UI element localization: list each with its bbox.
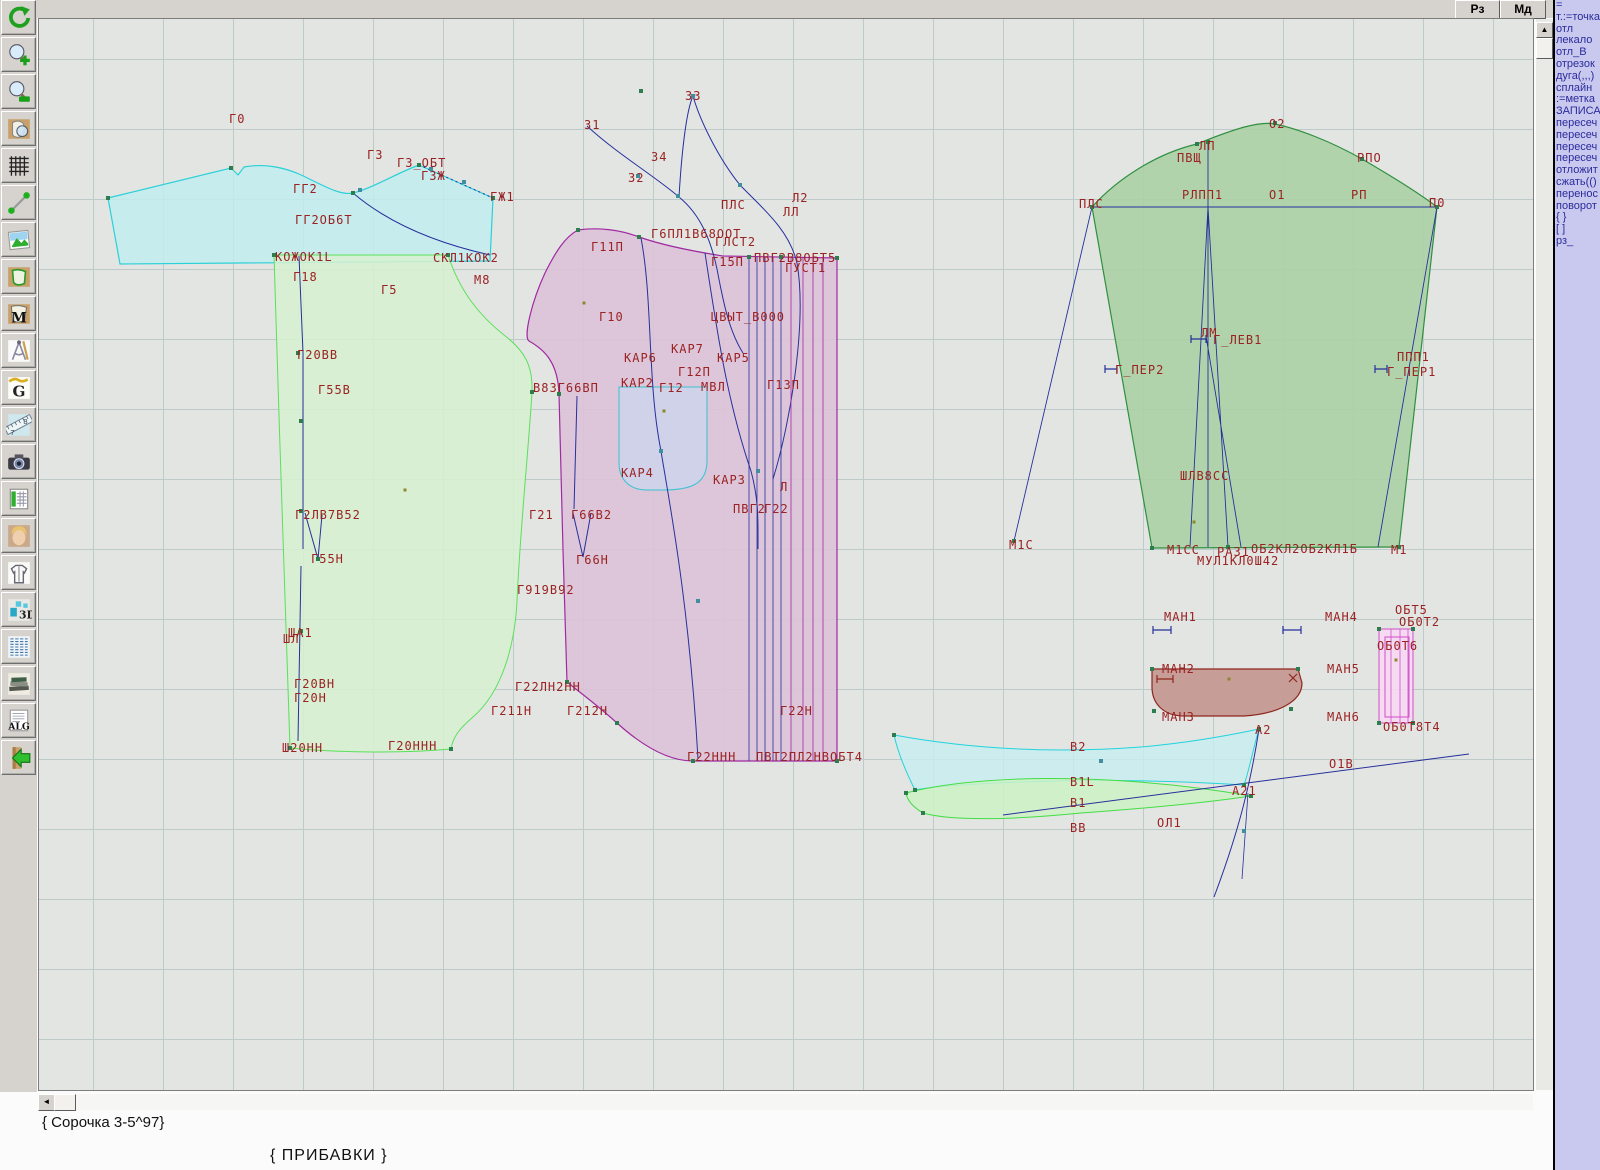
point-marker (747, 255, 751, 259)
pattern-label: МУЛ1КЛ0Ш42 (1197, 554, 1279, 568)
pattern-label: З4 (651, 150, 667, 164)
command-item[interactable]: дуга(,,,) (1555, 71, 1600, 83)
command-item[interactable]: пересеч (1555, 130, 1600, 142)
pattern-label: Г15П (711, 255, 744, 269)
pattern-label: Г21 (529, 508, 554, 522)
point-marker (1193, 521, 1196, 524)
pattern-label: СКЛ1КОК2 (433, 251, 499, 265)
pattern-label: Г3_ОБТ (397, 156, 446, 170)
command-item[interactable]: перенос (1555, 189, 1600, 201)
books-icon-button[interactable] (1, 666, 36, 701)
alg-icon: ALG (6, 708, 32, 734)
point-marker (1150, 546, 1154, 550)
point-marker (1150, 667, 1154, 671)
pattern-label: ОБ0Т8Т4 (1383, 720, 1441, 734)
image-icon-button[interactable] (1, 222, 36, 257)
pattern-label: В8ЗГ66ВП (533, 381, 599, 395)
pattern-label: ГГ2 (293, 182, 318, 196)
scroll-up-button[interactable]: ▲ (1536, 22, 1553, 38)
pattern-label: Г18 (293, 270, 318, 284)
pattern-label: КАР3 (713, 473, 746, 487)
table-icon-button[interactable] (1, 481, 36, 516)
pattern-label: МАН4 (1325, 610, 1358, 624)
pattern-label: В1L (1070, 775, 1095, 789)
pattern-label: МАН6 (1327, 710, 1360, 724)
pattern-label: КАР6 (624, 351, 657, 365)
pattern-label: Г55Н (311, 552, 344, 566)
svg-text:7: 7 (10, 427, 14, 436)
portrait-icon-button[interactable] (1, 518, 36, 553)
pattern-drawing: Г0Г3Г3_ОБТГЗЖГГ2ГГ2ОБ6ТГЖ1КОЖОК1LСКЛ1КОК… (39, 19, 1533, 1090)
piece-m-icon: M (6, 301, 32, 327)
point-marker (913, 788, 917, 792)
pattern-label: КАР7 (671, 342, 704, 356)
segment-icon-button[interactable] (1, 185, 36, 220)
pattern-label: Г12П (678, 365, 711, 379)
pattern-label: Г211Н (491, 704, 532, 718)
pattern-label: А2 (1255, 723, 1271, 737)
pattern-label: Г2ЛВ7В52 (295, 508, 361, 522)
point-marker (756, 469, 760, 473)
portrait-icon (6, 523, 32, 549)
pattern-label: Г11П (591, 240, 624, 254)
pattern-label: РЛПП1 (1182, 188, 1223, 202)
exit-icon-button[interactable] (1, 740, 36, 775)
zoom-out-icon (6, 79, 32, 105)
svg-text:M: M (11, 310, 27, 326)
point-marker (1296, 667, 1300, 671)
point-marker (299, 419, 303, 423)
pattern-label: Г20Н (294, 691, 327, 705)
command-list: =т.:=точкаотллекалоотл_Вотрезокдуга(,,,)… (1553, 0, 1600, 1170)
pattern-label: Г12 (659, 381, 684, 395)
pattern-label: А21 (1232, 784, 1257, 798)
pattern-label: КОЖОК1L (275, 250, 333, 264)
cuff-piece[interactable] (1152, 669, 1302, 716)
horizontal-scroll-thumb[interactable] (54, 1094, 76, 1111)
svg-text:G: G (12, 382, 25, 400)
pattern-label: Л2 (792, 191, 808, 205)
pattern-label: Г13П (767, 378, 800, 392)
segment-icon (6, 190, 32, 216)
pattern-label: Г66В2 (571, 508, 612, 522)
g-letter-icon: G (6, 375, 32, 401)
zoom-out-icon-button[interactable] (1, 74, 36, 109)
point-marker (358, 188, 362, 192)
pattern-label: МАН1 (1164, 610, 1197, 624)
svg-text:3D: 3D (19, 608, 32, 621)
piece-green-icon (6, 264, 32, 290)
pattern-label: Г55В (318, 383, 351, 397)
pattern-label: Г20ВН (294, 677, 335, 691)
camera-icon (6, 449, 32, 475)
pattern-label: В1 (1070, 796, 1086, 810)
pattern-label: ЛЛ (783, 205, 799, 219)
point-marker (663, 410, 666, 413)
point-marker (583, 302, 586, 305)
md-button[interactable]: Мд (1500, 0, 1546, 19)
g-letter-icon-button[interactable]: G (1, 370, 36, 405)
ruler-icon-button[interactable]: 78 (1, 407, 36, 442)
svg-text:8: 8 (23, 416, 27, 425)
text-list-icon-button[interactable] (1, 629, 36, 664)
pattern-label: КАР2 (621, 376, 654, 390)
pattern-label: ШЛ (283, 632, 299, 646)
command-item[interactable]: отрезок (1555, 59, 1600, 71)
ruler-icon: 78 (6, 412, 32, 438)
pattern-label: Г20ВВ (297, 348, 338, 362)
pattern-label: ГГ2ОБ6Т (295, 213, 353, 227)
3d-icon-button[interactable]: 3D (1, 592, 36, 627)
zoom-in-icon (6, 42, 32, 68)
undo-icon (6, 5, 32, 31)
pattern-label: МАН3 (1162, 710, 1195, 724)
pattern-label: Г3 (367, 148, 383, 162)
point-marker (615, 721, 619, 725)
pattern-label: Г22Н (780, 704, 813, 718)
point-marker (676, 194, 680, 198)
point-marker (1228, 678, 1231, 681)
point-marker (738, 183, 742, 187)
svg-text:ALG: ALG (7, 721, 30, 732)
toolbar: MG783DALG (0, 0, 37, 1092)
point-marker (1377, 721, 1381, 725)
point-marker (639, 89, 643, 93)
pattern-label: РПО (1357, 151, 1382, 165)
pattern-label: Г212Н (567, 704, 608, 718)
pattern-label: Г20ННН (388, 739, 437, 753)
pattern-label: ОЛ1 (1157, 816, 1182, 830)
pattern-label: ГЗЖ (421, 169, 446, 183)
point-marker (696, 599, 700, 603)
pattern-label: О1 (1269, 188, 1285, 202)
image-icon (6, 227, 32, 253)
point-marker (637, 235, 641, 239)
sleeve-piece[interactable] (1092, 123, 1437, 548)
pattern-label: З2 (628, 171, 644, 185)
top-strip (0, 0, 1553, 18)
grid-icon-button[interactable] (1, 148, 36, 183)
point-marker (1242, 829, 1246, 833)
zoom-in-icon-button[interactable] (1, 37, 36, 72)
pattern-label: ПЛС (1079, 197, 1104, 211)
point-marker (1377, 627, 1381, 631)
vertical-scroll-thumb[interactable] (1536, 38, 1553, 59)
pattern-label: Г919В92 (517, 583, 575, 597)
point-marker (1289, 707, 1293, 711)
pattern-label: О2 (1269, 117, 1285, 131)
command-item[interactable]: т.:=точка (1555, 12, 1600, 24)
pattern-name-text: { Сорочка 3-5^97} (42, 1114, 164, 1131)
vertical-scrollbar[interactable]: ▲ (1536, 19, 1553, 1090)
pattern-label: ВВ (1070, 821, 1086, 835)
pattern-label: МАН5 (1327, 662, 1360, 676)
books-icon (6, 671, 32, 697)
pattern-label: В2 (1070, 740, 1086, 754)
point-marker (462, 180, 466, 184)
drafting-icon (6, 338, 32, 364)
pattern-label: ОБ0Т6 (1377, 639, 1418, 653)
pattern-label: Г_ПЕР1 (1387, 365, 1436, 379)
pattern-label: ПВЩ (1177, 151, 1202, 165)
pattern-label: ГУСТ1 (785, 261, 826, 275)
pattern-label: ГЛСТ2 (715, 235, 756, 249)
piece-view-icon-button[interactable] (1, 111, 36, 146)
scroll-left-button[interactable]: ◄ (38, 1094, 55, 1111)
pattern-label: ПВТ2ПЛ2НВОБТ4 (756, 750, 863, 764)
piece-green-icon-button[interactable] (1, 259, 36, 294)
drawing-canvas[interactable]: Г0Г3Г3_ОБТГЗЖГГ2ГГ2ОБ6ТГЖ1КОЖОК1LСКЛ1КОК… (38, 18, 1534, 1091)
point-marker (229, 166, 233, 170)
pattern-label: Л (780, 480, 788, 494)
pattern-label: КАР5 (717, 351, 750, 365)
pattern-label: О1В (1329, 757, 1354, 771)
pattern-label: Г66Н (576, 553, 609, 567)
pattern-label: ПВГ2 (733, 502, 766, 516)
3d-icon: 3D (6, 597, 32, 623)
pattern-label: Г0 (229, 112, 245, 126)
pattern-label: М1 (1391, 543, 1407, 557)
point-marker (904, 791, 908, 795)
pattern-label: М1СС (1167, 543, 1200, 557)
pattern-label: ППП1 (1397, 350, 1430, 364)
pattern-label: М8 (474, 273, 490, 287)
point-marker (659, 449, 663, 453)
command-item[interactable]: пересеч (1555, 118, 1600, 130)
garment-icon (6, 560, 32, 586)
point-marker (404, 489, 407, 492)
pattern-label: П0 (1429, 196, 1445, 210)
command-item[interactable]: сжать(() (1555, 177, 1600, 189)
grid-icon (6, 153, 32, 179)
rz-button[interactable]: Рз (1455, 0, 1500, 19)
app-window: Рз Мд MG783DALG (0, 0, 1600, 1170)
pattern-label: Г22 (764, 502, 789, 516)
drafting-icon-button[interactable] (1, 333, 36, 368)
point-marker (921, 811, 925, 815)
pattern-label: Ш20НН (282, 741, 323, 755)
point-marker (106, 196, 110, 200)
camera-icon-button[interactable] (1, 444, 36, 479)
text-list-icon (6, 634, 32, 660)
allowances-text: { ПРИБАВКИ } (270, 1147, 388, 1165)
piece-m-icon-button[interactable]: M (1, 296, 36, 331)
pattern-label: Г22ЛН2НН (515, 680, 581, 694)
pattern-label: ЦВЫТ_В000 (711, 310, 785, 324)
exit-icon (6, 745, 32, 771)
pattern-label: М1С (1009, 538, 1034, 552)
table-icon (6, 486, 32, 512)
point-marker (449, 747, 453, 751)
pattern-label: Г5 (381, 283, 397, 297)
piece-view-icon (6, 116, 32, 142)
pattern-label: Г22ННН (687, 750, 736, 764)
alg-icon-button[interactable]: ALG (1, 703, 36, 738)
point-marker (351, 191, 355, 195)
pattern-label: МАН2 (1162, 662, 1195, 676)
point-marker (1395, 659, 1398, 662)
pattern-label: ШЛВ8СС (1180, 469, 1229, 483)
point-marker (892, 733, 896, 737)
pattern-label: КАР4 (621, 466, 654, 480)
pattern-label: ОБ0Т2 (1399, 615, 1440, 629)
pattern-label: ПЛС (721, 198, 746, 212)
pattern-label: ГЖ1 (490, 190, 515, 204)
pattern-label: Г_ПЕР2 (1115, 363, 1164, 377)
undo-icon-button[interactable] (1, 0, 36, 35)
point-marker (1099, 759, 1103, 763)
horizontal-scrollbar[interactable]: ◄ (38, 1094, 1533, 1110)
command-item[interactable]: рз_ (1555, 236, 1600, 248)
point-marker (1152, 709, 1156, 713)
pattern-label: Г_ЛЕВ1 (1213, 333, 1262, 347)
pattern-label: З3 (685, 89, 701, 103)
pattern-label: РП (1351, 188, 1367, 202)
point-marker (576, 228, 580, 232)
pattern-label: Г10 (599, 310, 624, 324)
garment-icon-button[interactable] (1, 555, 36, 590)
pattern-label: МВЛ (701, 380, 726, 394)
pattern-label: З1 (584, 118, 600, 132)
